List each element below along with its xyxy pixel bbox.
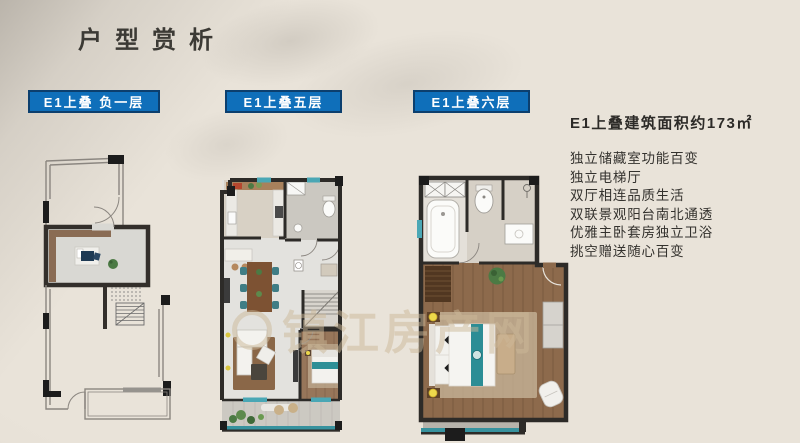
floorplan-floor5	[203, 172, 350, 435]
window	[311, 398, 331, 403]
plant	[229, 415, 237, 423]
balcony	[222, 400, 340, 432]
wall-block	[419, 176, 429, 185]
wall-block	[227, 186, 235, 196]
fridge	[223, 278, 230, 303]
plan-label-floor6: E1上叠六层	[413, 90, 530, 113]
pouf	[274, 405, 284, 415]
bedroom	[299, 330, 340, 400]
bed	[429, 324, 495, 386]
pouf	[288, 403, 298, 413]
feature-item: 双联景观阳台南北通透	[570, 206, 790, 225]
wall-block	[43, 313, 49, 329]
coffee-table	[251, 364, 267, 380]
info-panel: E1上叠建筑面积约173㎡ 独立储藏室功能百变 独立电梯厅 双厅相连品质生活 双…	[570, 112, 790, 262]
master-bathroom	[423, 180, 537, 263]
sofa	[237, 330, 267, 347]
lamp	[429, 389, 437, 397]
wall-block	[43, 201, 49, 223]
plant	[489, 268, 506, 285]
tv-console	[293, 350, 298, 382]
feature-item: 独立储藏室功能百变	[570, 150, 790, 169]
wall-block	[43, 391, 61, 397]
sink	[294, 224, 302, 232]
wall-block	[161, 295, 170, 305]
window	[257, 178, 271, 183]
bathtub	[427, 200, 459, 258]
door-opening	[92, 224, 114, 231]
balcony-rail	[222, 426, 340, 430]
area-title: E1上叠建筑面积约173㎡	[570, 112, 790, 133]
balcony-rail	[421, 428, 525, 432]
bathroom	[285, 180, 340, 240]
master-bedroom	[423, 263, 565, 420]
island-counter	[225, 249, 252, 261]
plan-label-basement: E1上叠 负一层	[28, 90, 160, 113]
closet	[321, 264, 337, 276]
window	[307, 178, 320, 183]
toilet	[475, 189, 493, 213]
window	[417, 220, 422, 238]
door-opening	[543, 263, 556, 269]
wall-block	[220, 421, 227, 430]
feature-list: 独立储藏室功能百变 独立电梯厅 双厅相连品质生活 双联景观阳台南北通透 优雅主卧…	[570, 150, 790, 262]
feature-item: 挑空赠送随心百变	[570, 243, 790, 262]
bench	[497, 334, 515, 374]
floorplan-basement	[28, 137, 176, 427]
plan-label-floor5: E1上叠五层	[225, 90, 342, 113]
feature-item: 独立电梯厅	[570, 169, 790, 188]
wall-block	[335, 421, 342, 430]
wall-block	[529, 176, 539, 185]
table	[81, 251, 94, 261]
storage-room	[46, 207, 148, 285]
wall-block	[335, 176, 343, 186]
plant	[108, 259, 118, 269]
feature-item: 优雅主卧套房独立卫浴	[570, 224, 790, 243]
basement-balcony	[85, 388, 170, 420]
stairs	[303, 290, 340, 328]
lamp	[429, 313, 437, 321]
toilet	[323, 201, 335, 217]
window	[243, 398, 267, 403]
feature-item: 双厅相连品质生活	[570, 187, 790, 206]
stairs	[103, 285, 144, 329]
wall-block	[445, 428, 465, 441]
wall-block	[108, 155, 124, 164]
vanity-sink	[505, 224, 533, 244]
brochure-page: 户型赏析 E1上叠 负一层 E1上叠五层 E1上叠六层	[0, 0, 800, 443]
floorplan-floor6	[415, 172, 570, 443]
page-title: 户型赏析	[78, 20, 226, 55]
